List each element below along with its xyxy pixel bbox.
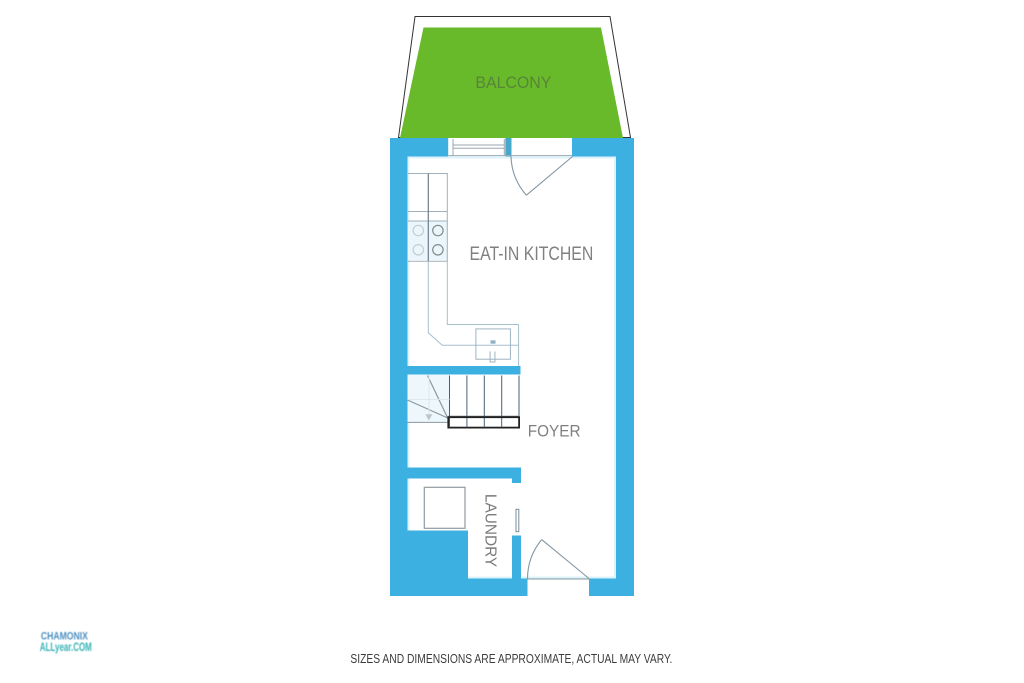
svg-text:SIZES AND DIMENSIONS ARE APPRO: SIZES AND DIMENSIONS ARE APPROXIMATE, AC… xyxy=(350,652,672,666)
svg-text:LAUNDRY: LAUNDRY xyxy=(482,494,499,568)
svg-text:BALCONY: BALCONY xyxy=(475,74,551,92)
svg-text:ALLyear.COM: ALLyear.COM xyxy=(40,642,92,654)
svg-text:FOYER: FOYER xyxy=(528,423,581,441)
svg-text:EAT-IN KITCHEN: EAT-IN KITCHEN xyxy=(470,244,594,265)
svg-text:CHAMONIX: CHAMONIX xyxy=(41,631,89,643)
